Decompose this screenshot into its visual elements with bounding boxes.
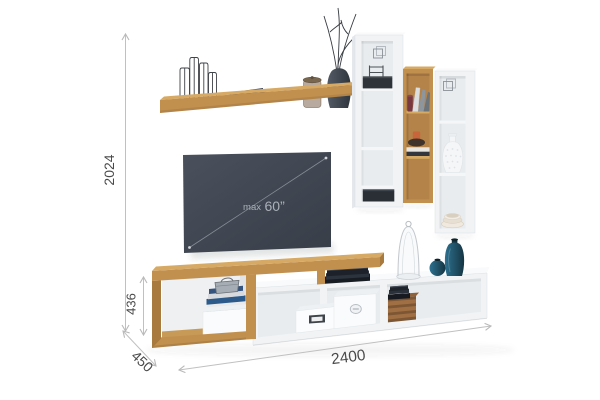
tv: max 60” xyxy=(183,152,331,253)
dim-depth-label: 450 xyxy=(128,348,156,376)
glass-cloche xyxy=(397,221,421,279)
shelf-column-right xyxy=(435,69,478,234)
tv-stand xyxy=(253,267,490,345)
wood-divider xyxy=(317,267,325,285)
books-on-crate xyxy=(388,285,410,299)
wood-box-right-leg xyxy=(246,274,256,339)
vase-teal-small xyxy=(430,259,446,276)
scene-svg: max 60” xyxy=(0,0,600,400)
dim-total-width-label: 2400 xyxy=(330,347,367,368)
dark-tray xyxy=(363,76,393,88)
vase-teal-large xyxy=(445,238,464,276)
storage-box-small xyxy=(296,302,340,333)
dim-total-height-label: 2024 xyxy=(101,154,117,185)
tv-max-label-size: 60” xyxy=(265,198,286,214)
wood-box-left-stile xyxy=(152,280,161,348)
tv-max-label-prefix: max xyxy=(243,202,261,213)
dark-box-bottom xyxy=(363,189,395,201)
wire-candleholders xyxy=(180,58,217,99)
shelf-column-left xyxy=(352,33,406,209)
candle-maroon xyxy=(407,95,413,112)
dim-stand-height-label: 436 xyxy=(124,293,139,315)
storage-box-large xyxy=(334,289,380,329)
shelf-column-middle xyxy=(403,67,436,204)
bowl-stack xyxy=(442,214,464,228)
product-dimension-diagram: max 60” xyxy=(0,0,600,400)
wall-shelf xyxy=(160,8,361,113)
